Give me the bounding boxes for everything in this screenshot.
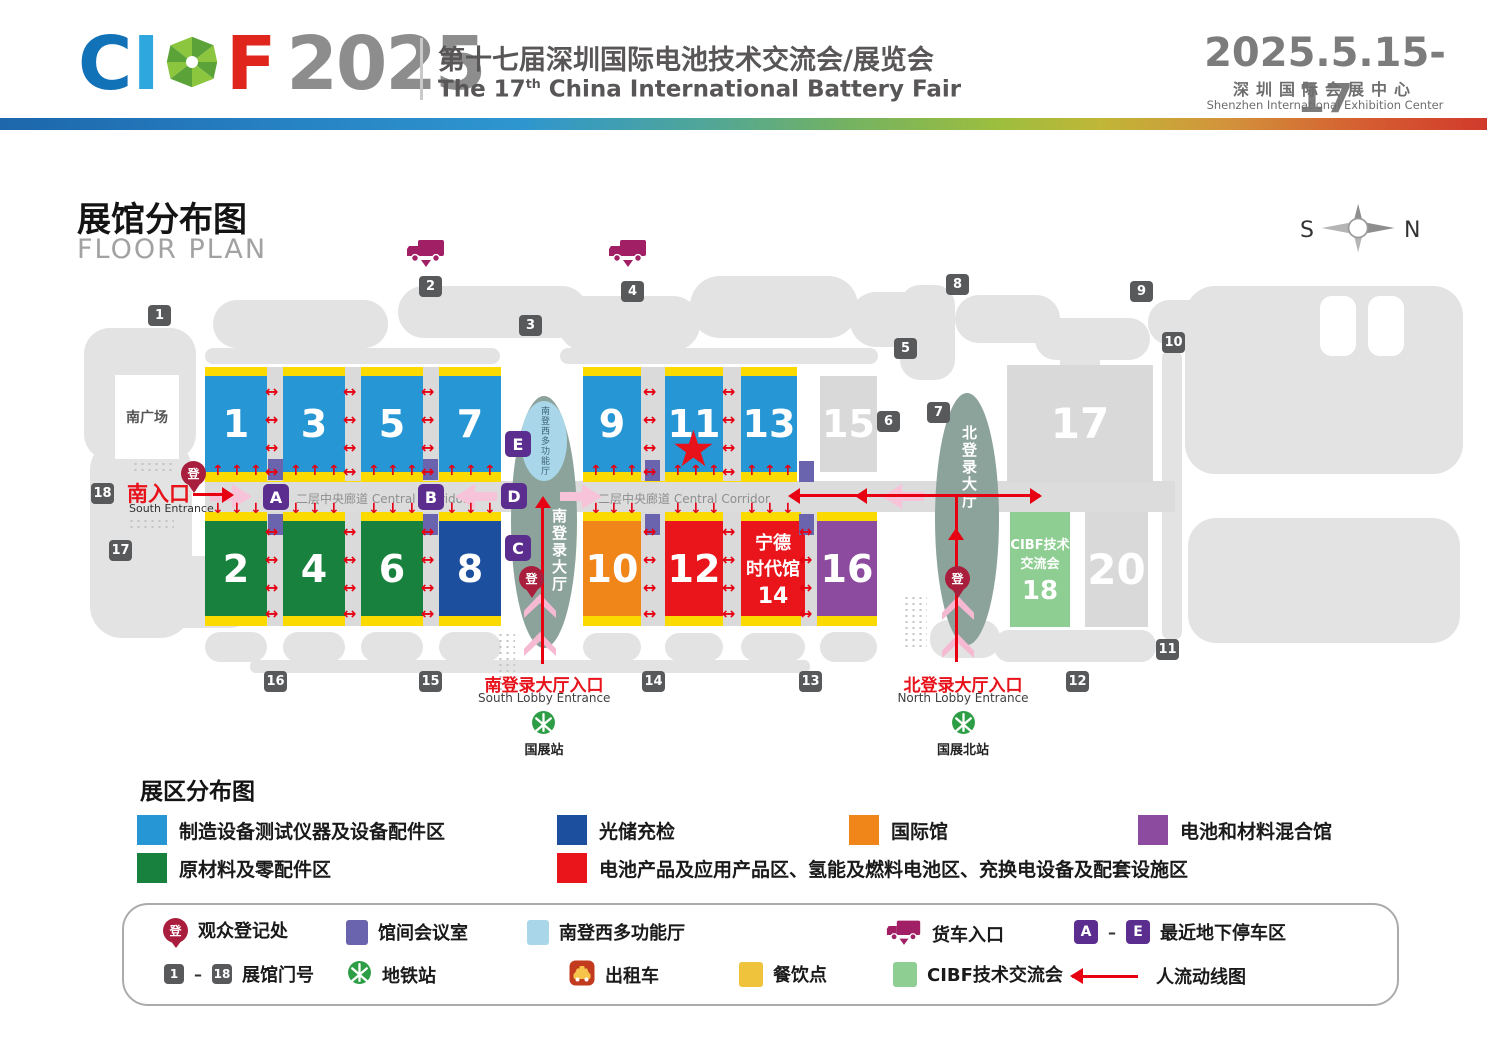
gate-badge-1: 1 xyxy=(148,305,171,326)
legend-label: 最近地下停车区 xyxy=(1160,919,1286,945)
registration-pin-south-entrance: 登 xyxy=(181,461,206,486)
venue-name-cn: 深圳国际会展中心 xyxy=(1195,76,1455,100)
registration-pin-icon: 登 xyxy=(163,918,188,943)
zone-item-materials: 原材料及零配件区 xyxy=(137,853,331,883)
down-arrow-icon: ↓ xyxy=(782,502,794,516)
zone-label: 电池产品及应用产品区、氢能及燃料电池区、充换电设备及配套设施区 xyxy=(599,855,1188,882)
legend-label: 南登西多功能厅 xyxy=(559,919,685,945)
zone-swatch-materials xyxy=(137,853,167,883)
hall-block-20: 20 xyxy=(1085,512,1148,627)
double-arrow-icon: ↔ xyxy=(722,440,735,456)
parking-a-badge: A xyxy=(1074,920,1098,944)
double-arrow-icon: ↔ xyxy=(722,384,735,400)
gate-badge-11: 11 xyxy=(1156,639,1179,660)
legend-label: 馆间会议室 xyxy=(378,919,468,945)
double-arrow-icon: ↔ xyxy=(722,412,735,428)
compass-rose-icon xyxy=(1320,200,1398,260)
legend-multifunction-hall: 南登西多功能厅 xyxy=(527,919,685,945)
hall-number: 12 xyxy=(668,550,721,588)
up-arrow-icon: ↑ xyxy=(250,464,262,478)
hall-block-10: 10 xyxy=(583,521,641,616)
parking-letter: E xyxy=(513,435,524,454)
south-plaza-label: 南广场 xyxy=(126,407,168,427)
double-arrow-icon: ↔ xyxy=(265,552,278,568)
cibf-line1: CIBF技术 xyxy=(1010,534,1069,553)
parking-badge-c: C xyxy=(505,535,531,561)
down-arrow-icon: ↓ xyxy=(387,502,399,516)
south-plaza: 南广场 xyxy=(115,375,179,459)
flow-route-arrowhead xyxy=(535,496,551,508)
gate-badge-8: 8 xyxy=(946,274,969,295)
double-arrow-icon: ↔ xyxy=(343,384,356,400)
zone-item-storage: 光储充检 xyxy=(557,815,675,845)
double-arrow-icon: ↔ xyxy=(421,384,434,400)
double-arrow-icon: ↔ xyxy=(643,552,656,568)
double-arrow-icon: ↔ xyxy=(643,412,656,428)
parking-e-badge: E xyxy=(1126,920,1150,944)
parking-badge-e: E xyxy=(505,431,531,457)
hall-block-2: 2 xyxy=(205,521,267,616)
building-shape xyxy=(1188,518,1460,643)
cibf-line2: 交流会 xyxy=(1020,553,1059,572)
zone-label: 国际馆 xyxy=(891,817,948,844)
fair-title-en: The 17th China International Battery Fai… xyxy=(438,76,961,103)
up-arrow-icon: ↑ xyxy=(446,464,458,478)
legend-label: 人流动线图 xyxy=(1156,963,1246,989)
cibf-number: 18 xyxy=(1022,576,1058,606)
hall-block-7: 7 xyxy=(439,376,501,472)
hall-number: 4 xyxy=(301,550,327,588)
double-arrow-icon: ↔ xyxy=(722,606,735,622)
down-arrow-icon: ↓ xyxy=(590,502,602,516)
down-arrow-icon: ↓ xyxy=(608,502,620,516)
double-arrow-icon: ↔ xyxy=(421,524,434,540)
parking-badge-a: A xyxy=(263,484,289,510)
down-arrow-icon: ↓ xyxy=(764,502,776,516)
up-arrow-icon: ↑ xyxy=(231,464,243,478)
gate-number: 5 xyxy=(901,341,910,356)
double-arrow-icon: ↔ xyxy=(799,606,812,622)
legend-parking: A – E 最近地下停车区 xyxy=(1074,919,1286,945)
fair-title-cn: 第十七届深圳国际电池技术交流会/展览会 xyxy=(438,38,934,77)
hall-number: 16 xyxy=(821,550,874,588)
double-arrow-icon: ↔ xyxy=(265,524,278,540)
gate-badge-4: 4 xyxy=(621,281,644,302)
hall-number: 13 xyxy=(743,405,796,443)
down-arrow-icon: ↓ xyxy=(250,502,262,516)
hall-number: 17 xyxy=(1051,403,1109,445)
hall-block-15: 15 xyxy=(820,376,877,472)
building-shape xyxy=(205,632,267,662)
legend-registration: 登 观众登记处 xyxy=(163,917,288,943)
gate-number: 2 xyxy=(426,279,435,294)
hall-block-16: 16 xyxy=(817,521,877,616)
legend-cibf: CIBF技术交流会 xyxy=(893,961,1063,987)
hall-block-13: 13 xyxy=(741,376,797,472)
gate-number: 12 xyxy=(1068,674,1086,689)
up-arrow-icon: ↑ xyxy=(626,464,638,478)
double-arrow-icon: ↔ xyxy=(265,384,278,400)
gate-number: 1 xyxy=(155,308,164,323)
double-arrow-icon: ↔ xyxy=(343,580,356,596)
double-arrow-icon: ↔ xyxy=(799,524,812,540)
double-arrow-icon: ↔ xyxy=(722,580,735,596)
parking-badge-b: B xyxy=(418,484,444,510)
building-shape xyxy=(560,348,878,364)
gate-number: 16 xyxy=(266,674,284,689)
hall-block-6: 6 xyxy=(361,521,423,616)
gate-badge-15: 15 xyxy=(419,671,442,692)
building-shape xyxy=(283,632,345,662)
gate-number: 17 xyxy=(111,543,129,558)
truck-entrance-icon-east xyxy=(608,236,648,274)
hall-block-3: 3 xyxy=(283,376,345,472)
compass-south-label: S xyxy=(1300,218,1314,243)
double-arrow-icon: ↔ xyxy=(421,412,434,428)
double-arrow-icon: ↔ xyxy=(343,412,356,428)
gate-badge-6: 6 xyxy=(877,411,900,432)
down-arrow-icon: ↓ xyxy=(708,502,720,516)
up-arrow-icon: ↑ xyxy=(608,464,620,478)
hall-number: 10 xyxy=(586,550,639,588)
double-arrow-icon: ↔ xyxy=(643,384,656,400)
dash: – xyxy=(1108,923,1116,942)
zone-item-mixed: 电池和材料混合馆 xyxy=(1138,815,1332,845)
up-arrow-icon: ↑ xyxy=(484,464,496,478)
down-arrow-icon: ↓ xyxy=(328,502,340,516)
double-arrow-icon: ↔ xyxy=(343,464,356,480)
flow-route-arrowhead xyxy=(855,488,867,504)
double-arrow-icon: ↔ xyxy=(343,524,356,540)
up-arrow-icon: ↑ xyxy=(406,464,418,478)
map-title-en: FLOOR PLAN xyxy=(77,234,267,265)
parking-letter: B xyxy=(425,488,437,507)
up-arrow-icon: ↑ xyxy=(290,464,302,478)
zone-label: 电池和材料混合馆 xyxy=(1180,817,1332,844)
double-arrow-icon: ↔ xyxy=(722,464,735,480)
up-arrow-icon: ↑ xyxy=(590,464,602,478)
double-arrow-icon: ↔ xyxy=(799,580,812,596)
hall-block-8: 8 xyxy=(439,521,501,616)
gate-badge-17: 17 xyxy=(109,540,132,561)
up-arrow-icon: ↑ xyxy=(328,464,340,478)
hall-number: 15 xyxy=(822,405,875,443)
gate-badge-9: 9 xyxy=(1130,281,1153,302)
zone-label: 光储充检 xyxy=(599,817,675,844)
south-lobby-multi-label: 南登西多功能厅 xyxy=(538,406,551,476)
gate-number: 6 xyxy=(884,414,893,429)
legend-metro: 地铁站 xyxy=(347,960,436,989)
up-arrow-icon: ↑ xyxy=(368,464,380,478)
logo-letter-c: C xyxy=(78,24,130,104)
up-arrow-icon: ↑ xyxy=(782,464,794,478)
catl-number: 14 xyxy=(758,584,789,609)
double-arrow-icon: ↔ xyxy=(722,552,735,568)
hall-number: 5 xyxy=(379,405,405,443)
parking-letter: A xyxy=(270,488,282,507)
catl-line1: 宁德 xyxy=(755,529,791,555)
double-arrow-icon: ↔ xyxy=(643,464,656,480)
up-arrow-icon: ↑ xyxy=(212,464,224,478)
zone-item-international: 国际馆 xyxy=(849,815,948,845)
gate-number: 7 xyxy=(934,405,943,420)
header-divider xyxy=(420,38,423,100)
gate-18-badge: 18 xyxy=(212,964,232,984)
building-shape xyxy=(361,632,423,662)
hall-cibf-18: CIBF技术 交流会 18 xyxy=(1010,512,1070,627)
building-shape xyxy=(820,632,877,662)
compass-north-label: N xyxy=(1404,218,1420,243)
down-arrow-icon: ↓ xyxy=(690,502,702,516)
hall-number: 1 xyxy=(223,405,249,443)
zone-swatch-mixed xyxy=(1138,815,1168,845)
hall-block-4: 4 xyxy=(283,521,345,616)
flow-route-arrowhead xyxy=(948,528,964,540)
hall-number: 6 xyxy=(379,550,405,588)
zone-swatch-battery xyxy=(557,853,587,883)
legend-label: 展馆门号 xyxy=(242,961,314,987)
south-lobby-label: 南登录大厅 xyxy=(549,508,570,593)
parking-badge-d: D xyxy=(501,483,527,509)
down-arrow-icon: ↓ xyxy=(484,502,496,516)
building-shape xyxy=(205,348,500,364)
cibf-swatch xyxy=(893,962,917,987)
hall-block-1: 1 xyxy=(205,376,267,472)
down-arrow-icon: ↓ xyxy=(290,502,302,516)
gate-number: 4 xyxy=(628,284,637,299)
zones-legend-title: 展区分布图 xyxy=(140,772,255,806)
legend-label: 地铁站 xyxy=(382,962,436,988)
gate-number: 3 xyxy=(526,318,535,333)
double-arrow-icon: ↔ xyxy=(643,606,656,622)
metro-station-south: 国展站 xyxy=(478,739,610,758)
building-shape xyxy=(213,300,388,348)
building-shape xyxy=(558,296,700,351)
legend-flow: 人流动线图 xyxy=(1072,963,1246,989)
zone-item-equipment: 制造设备测试仪器及设备配件区 xyxy=(137,815,445,845)
gate-number: 9 xyxy=(1137,284,1146,299)
gate-number: 10 xyxy=(1164,335,1182,350)
dining-swatch xyxy=(739,962,763,987)
gate-badge-7: 7 xyxy=(927,402,950,423)
highlight-star-icon: ★ xyxy=(671,424,716,474)
gate-badge-5: 5 xyxy=(894,338,917,359)
double-arrow-icon: ↔ xyxy=(421,440,434,456)
double-arrow-icon: ↔ xyxy=(643,580,656,596)
hall-number: 20 xyxy=(1087,549,1145,591)
zone-label: 原材料及零配件区 xyxy=(179,855,331,882)
gate-number: 13 xyxy=(801,674,819,689)
flow-arrow-icon xyxy=(1072,975,1138,978)
hall-number: 3 xyxy=(301,405,327,443)
parking-letter: D xyxy=(507,487,520,506)
gate-badge-10: 10 xyxy=(1162,332,1185,353)
up-arrow-icon: ↑ xyxy=(746,464,758,478)
hall-number: 7 xyxy=(457,405,483,443)
legend-label: 餐饮点 xyxy=(773,961,827,987)
down-arrow-icon: ↓ xyxy=(231,502,243,516)
dotted-path xyxy=(128,518,174,530)
legend-label: 出租车 xyxy=(605,962,659,988)
zone-label: 制造设备测试仪器及设备配件区 xyxy=(179,817,445,844)
building-shape xyxy=(900,285,955,380)
building-shape xyxy=(583,633,641,661)
zone-swatch-storage xyxy=(557,815,587,845)
building-slot xyxy=(1368,296,1404,356)
logo-letter-f: F xyxy=(226,24,275,104)
parking-letter: C xyxy=(512,539,524,558)
flow-route-arrowhead xyxy=(222,487,234,503)
dotted-path xyxy=(132,461,176,474)
metro-station-north: 国展北站 xyxy=(897,739,1029,758)
gate-1-badge: 1 xyxy=(164,964,184,984)
down-arrow-icon: ↓ xyxy=(406,502,418,516)
legend-label: 观众登记处 xyxy=(198,917,288,943)
down-arrow-icon: ↓ xyxy=(746,502,758,516)
double-arrow-icon: ↔ xyxy=(722,524,735,540)
flow-route-arrowhead xyxy=(788,488,800,504)
rainbow-bar xyxy=(0,118,1487,130)
hall-number: 8 xyxy=(457,550,483,588)
gate-badge-12: 12 xyxy=(1066,671,1089,692)
up-arrow-icon: ↑ xyxy=(309,464,321,478)
hall-number: 9 xyxy=(599,405,625,443)
south-lobby-entrance-en: South Lobby Entrance xyxy=(478,691,610,705)
south-entrance-label-en: South Entrance xyxy=(129,502,214,515)
central-corridor-label-east: 二层中央廊道 Central Corridor xyxy=(598,490,770,507)
gate-badge-13: 13 xyxy=(799,671,822,692)
meeting-room-block xyxy=(799,461,814,482)
hall-block-5: 5 xyxy=(361,376,423,472)
down-arrow-icon: ↓ xyxy=(368,502,380,516)
double-arrow-icon: ↔ xyxy=(265,464,278,480)
legend-taxi: 出租车 xyxy=(569,960,659,990)
building-shape xyxy=(741,633,805,661)
dash: – xyxy=(194,965,202,984)
venue-name-en: Shenzhen International Exhibition Center xyxy=(1195,98,1455,112)
building-shape xyxy=(439,632,501,662)
truck-icon xyxy=(886,917,922,952)
multifunction-swatch xyxy=(527,920,549,945)
down-arrow-icon: ↓ xyxy=(446,502,458,516)
gate-number: 11 xyxy=(1158,642,1176,657)
double-arrow-icon: ↔ xyxy=(343,606,356,622)
legend-label: CIBF技术交流会 xyxy=(927,961,1063,987)
logo-letter-i: I xyxy=(132,24,158,104)
metro-icon xyxy=(347,960,372,989)
double-arrow-icon: ↔ xyxy=(265,580,278,596)
flow-route-arrowhead xyxy=(1030,488,1042,504)
up-arrow-icon: ↑ xyxy=(764,464,776,478)
legend-meeting-room: 馆间会议室 xyxy=(346,919,468,945)
down-arrow-icon: ↓ xyxy=(672,502,684,516)
gate-badge-16: 16 xyxy=(264,671,287,692)
down-arrow-icon: ↓ xyxy=(309,502,321,516)
building-slot xyxy=(1320,296,1356,356)
double-arrow-icon: ↔ xyxy=(265,440,278,456)
double-arrow-icon: ↔ xyxy=(643,440,656,456)
building-shape xyxy=(994,630,1156,662)
double-arrow-icon: ↔ xyxy=(421,580,434,596)
hall-catl-14: 宁德 时代馆 14 xyxy=(741,521,805,616)
double-arrow-icon: ↔ xyxy=(421,552,434,568)
gate-number: 8 xyxy=(953,277,962,292)
zone-swatch-equipment xyxy=(137,815,167,845)
compass: S N xyxy=(1300,200,1420,260)
taxi-icon xyxy=(569,960,595,990)
up-arrow-icon: ↑ xyxy=(387,464,399,478)
gate-badge-18: 18 xyxy=(91,483,114,504)
registration-pin-north-lobby: 登 xyxy=(945,566,970,591)
up-arrow-icon: ↑ xyxy=(465,464,477,478)
gate-number: 14 xyxy=(644,674,662,689)
gate-badge-2: 2 xyxy=(419,276,442,297)
double-arrow-icon: ↔ xyxy=(343,440,356,456)
gate-number: 18 xyxy=(93,486,111,501)
building-shape xyxy=(690,276,858,338)
truck-entrance-icon-west xyxy=(406,236,446,274)
metro-icon-south xyxy=(531,710,556,739)
legend-truck-entrance: 货车入口 xyxy=(886,917,1004,952)
building-shape xyxy=(665,633,723,661)
zone-swatch-international xyxy=(849,815,879,845)
zone-item-battery: 电池产品及应用产品区、氢能及燃料电池区、充换电设备及配套设施区 xyxy=(557,853,1188,883)
gate-badge-14: 14 xyxy=(642,671,665,692)
registration-pin-south-lobby: 登 xyxy=(519,566,544,591)
dotted-path xyxy=(903,595,927,650)
legend-dining: 餐饮点 xyxy=(739,961,827,987)
hall-block-9: 9 xyxy=(583,376,641,472)
legend-gate-numbers: 1 – 18 展馆门号 xyxy=(164,961,314,987)
hall-number: 2 xyxy=(223,550,249,588)
hall-block-12: 12 xyxy=(665,521,723,616)
cibf-logo: C I F 2025 xyxy=(78,24,484,104)
legend-label: 货车入口 xyxy=(932,921,1004,947)
double-arrow-icon: ↔ xyxy=(421,606,434,622)
floor-plan-page: C I F 2025 第十七届深圳国际电池技术交流会/展览会 The 17th … xyxy=(0,0,1487,1052)
catl-line2: 时代馆 xyxy=(746,555,800,581)
double-arrow-icon: ↔ xyxy=(799,552,812,568)
logo-leaf-b-icon xyxy=(162,32,222,96)
hall-block-17: 17 xyxy=(1007,365,1153,482)
north-lobby-label: 北登录大厅 xyxy=(959,425,980,510)
double-arrow-icon: ↔ xyxy=(643,524,656,540)
flow-route-line xyxy=(795,494,1040,497)
double-arrow-icon: ↔ xyxy=(421,464,434,480)
metro-icon-north xyxy=(951,710,976,739)
meeting-room-swatch xyxy=(346,920,368,945)
double-arrow-icon: ↔ xyxy=(265,412,278,428)
double-arrow-icon: ↔ xyxy=(343,552,356,568)
north-lobby-entrance-en: North Lobby Entrance xyxy=(897,691,1029,705)
down-arrow-icon: ↓ xyxy=(626,502,638,516)
double-arrow-icon: ↔ xyxy=(265,606,278,622)
gate-badge-3: 3 xyxy=(519,315,542,336)
down-arrow-icon: ↓ xyxy=(465,502,477,516)
gate-number: 15 xyxy=(421,674,439,689)
